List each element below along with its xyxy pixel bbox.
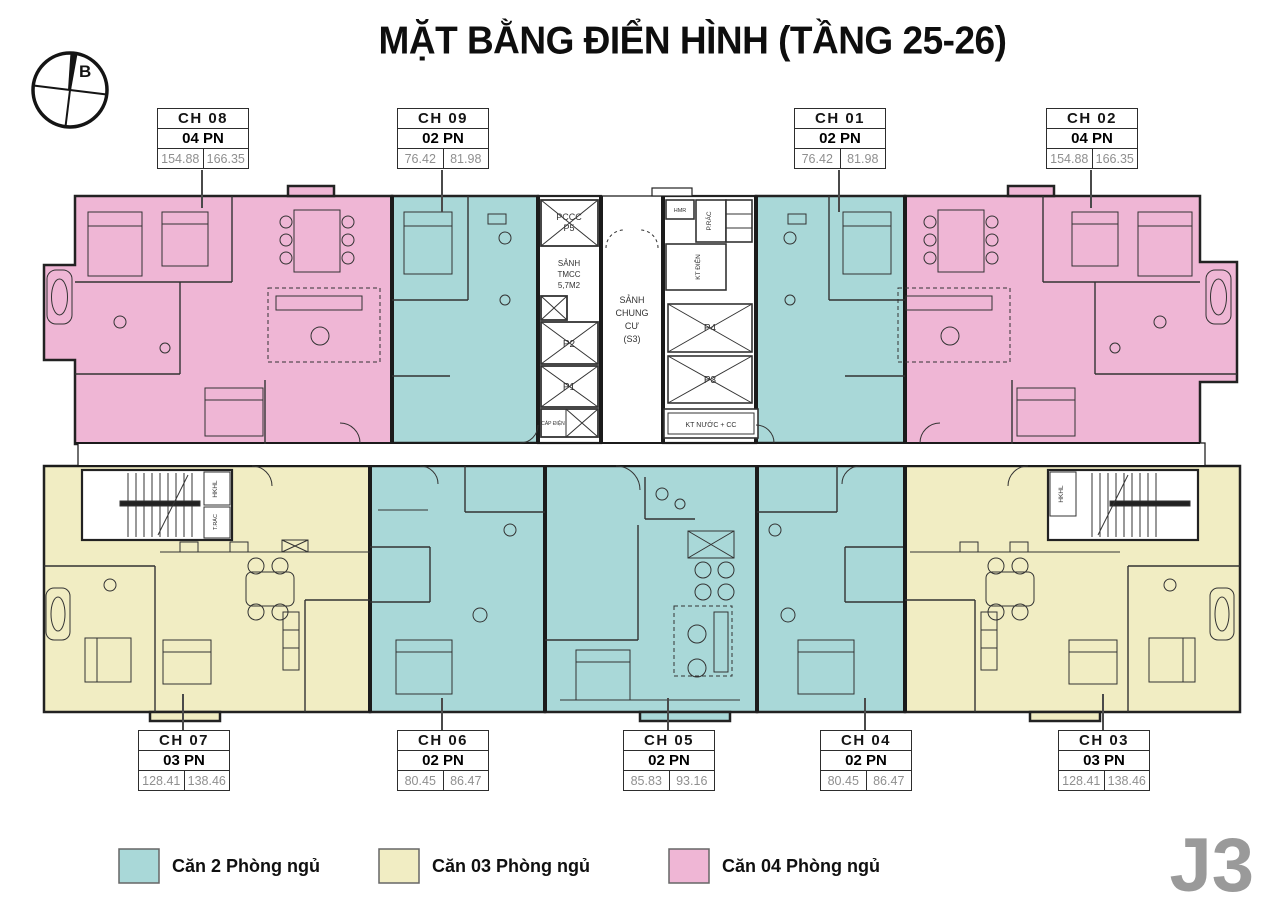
core-cap-dien-label: CÁP ĐIỆN [541,419,565,427]
leader-ch08 [201,170,203,208]
svg-text:5,7M2: 5,7M2 [558,281,581,290]
unit-label-ch09: CH 09 02 PN 76.4281.98 [397,108,489,169]
unit-areas: 128.41138.46 [139,771,229,790]
unit-label-ch08: CH 08 04 PN 154.88166.35 [157,108,249,169]
unit-areas: 80.4586.47 [821,771,911,790]
legend-item-4pn: Căn 04 Phòng ngủ [668,848,880,884]
unit-areas: 76.4281.98 [398,149,488,168]
leader-ch01 [838,170,840,212]
svg-text:P5: P5 [563,223,574,233]
unit-label-ch06: CH 06 02 PN 80.4586.47 [397,730,489,791]
legend-item-2pn: Căn 2 Phòng ngủ [118,848,320,884]
unit-ch02-area [905,196,1237,444]
unit-label-ch07: CH 07 03 PN 128.41138.46 [138,730,230,791]
unit-label-ch04: CH 04 02 PN 80.4586.47 [820,730,912,791]
svg-text:(S3): (S3) [623,334,640,344]
unit-areas: 154.88166.35 [158,149,248,168]
unit-id: CH 07 [139,731,229,751]
unit-bedrooms: 04 PN [158,129,248,149]
stair-left-label: HKHL [212,480,219,498]
unit-label-ch01: CH 01 02 PN 76.4281.98 [794,108,886,169]
unit-ch01-area [756,196,905,443]
unit-id: CH 06 [398,731,488,751]
legend-label: Căn 2 Phòng ngủ [172,856,320,877]
unit-ch09-area [392,196,538,443]
unit-bedrooms: 02 PN [624,751,714,771]
core-sanh-tmcc-label: SẢNH [558,259,580,268]
unit-bedrooms: 02 PN [795,129,885,149]
legend-label: Căn 04 Phòng ngủ [722,856,880,877]
legend-swatch-4pn [668,848,710,884]
leader-ch09 [441,170,443,212]
unit-id: CH 04 [821,731,911,751]
unit-id: CH 09 [398,109,488,129]
svg-text:CƯ: CƯ [625,321,639,331]
unit-ch05-area [545,466,757,712]
svg-text:TMCC: TMCC [557,270,580,279]
core-hmr-label: HMR [674,208,687,214]
leader-ch06 [441,698,443,730]
unit-ch04-area [757,466,905,712]
core-p1-label: P1 [563,382,576,393]
unit-bedrooms: 03 PN [139,751,229,771]
compass-north-label: B [79,62,91,81]
legend-item-3pn: Căn 03 Phòng ngủ [378,848,590,884]
leader-ch02 [1090,170,1092,208]
unit-areas: 80.4586.47 [398,771,488,790]
svg-text:CHUNG: CHUNG [616,308,649,318]
legend-swatch-2pn [118,848,160,884]
legend-swatch-3pn [378,848,420,884]
core-p2-label: P2 [563,339,576,350]
leader-ch03 [1102,694,1104,730]
core-pccc-label: PCCC [556,212,582,222]
leader-ch07 [182,694,184,730]
unit-bedrooms: 04 PN [1047,129,1137,149]
unit-id: CH 01 [795,109,885,129]
unit-id: CH 02 [1047,109,1137,129]
unit-label-ch02: CH 02 04 PN 154.88166.35 [1046,108,1138,169]
unit-bedrooms: 02 PN [821,751,911,771]
core-ktdien-label: KT ĐIỆN [693,254,702,280]
unit-label-ch03: CH 03 03 PN 128.41138.46 [1058,730,1150,791]
unit-bedrooms: 03 PN [1059,751,1149,771]
block-label: J3 [1169,828,1254,904]
unit-areas: 76.4281.98 [795,149,885,168]
leader-ch05 [667,698,669,730]
unit-label-ch05: CH 05 02 PN 85.8393.16 [623,730,715,791]
core-p4-label: P4 [704,323,717,334]
unit-id: CH 03 [1059,731,1149,751]
unit-areas: 128.41138.46 [1059,771,1149,790]
core-ktnuoc-label: KT NƯỚC + CC [686,420,737,429]
compass-icon: B [26,44,114,136]
leader-ch04 [864,698,866,730]
legend-label: Căn 03 Phòng ngủ [432,856,590,877]
unit-bedrooms: 02 PN [398,751,488,771]
core-p3-label: P3 [704,375,717,386]
unit-id: CH 05 [624,731,714,751]
unit-bedrooms: 02 PN [398,129,488,149]
unit-id: CH 08 [158,109,248,129]
svg-text:SẢNH: SẢNH [619,294,644,305]
unit-areas: 85.8393.16 [624,771,714,790]
stair-left-label2: T.RÁC [212,514,219,530]
unit-areas: 154.88166.35 [1047,149,1137,168]
stair-right-label: HKHL [1058,485,1065,503]
floor-plan-page: MẶT BẰNG ĐIỂN HÌNH (TẦNG 25-26) B [0,0,1280,904]
core-prac-label: P.RÁC [704,211,713,230]
